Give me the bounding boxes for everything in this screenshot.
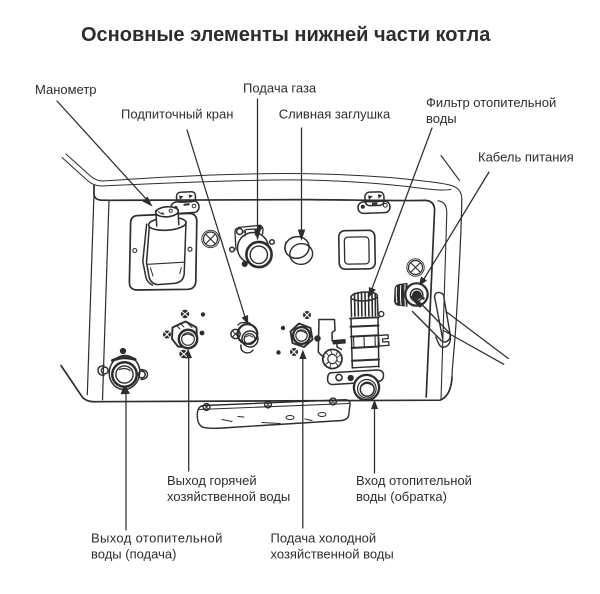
svg-text:хозяйственной воды: хозяйственной воды xyxy=(167,489,290,504)
svg-text:Сливная заглушка: Сливная заглушка xyxy=(279,107,391,122)
svg-text:Основные элементы нижней части: Основные элементы нижней части котла xyxy=(81,24,491,46)
svg-text:Выход отопительной: Выход отопительной xyxy=(91,531,223,546)
svg-text:Манометр: Манометр xyxy=(35,82,97,97)
svg-text:Выход горячей: Выход горячей xyxy=(167,473,257,488)
svg-text:Подача холодной: Подача холодной xyxy=(271,531,377,546)
svg-text:воды: воды xyxy=(426,111,457,126)
svg-text:Фильтр отопительной: Фильтр отопительной xyxy=(426,95,556,110)
svg-text:воды (обратка): воды (обратка) xyxy=(356,489,447,504)
svg-text:воды (подача): воды (подача) xyxy=(91,547,176,562)
svg-text:Подпиточный кран: Подпиточный кран xyxy=(121,107,233,122)
svg-text:Кабель питания: Кабель питания xyxy=(478,150,574,165)
svg-text:Подача газа: Подача газа xyxy=(243,81,317,96)
svg-text:хозяйственной воды: хозяйственной воды xyxy=(271,547,394,562)
svg-text:Вход отопительной: Вход отопительной xyxy=(356,473,472,488)
